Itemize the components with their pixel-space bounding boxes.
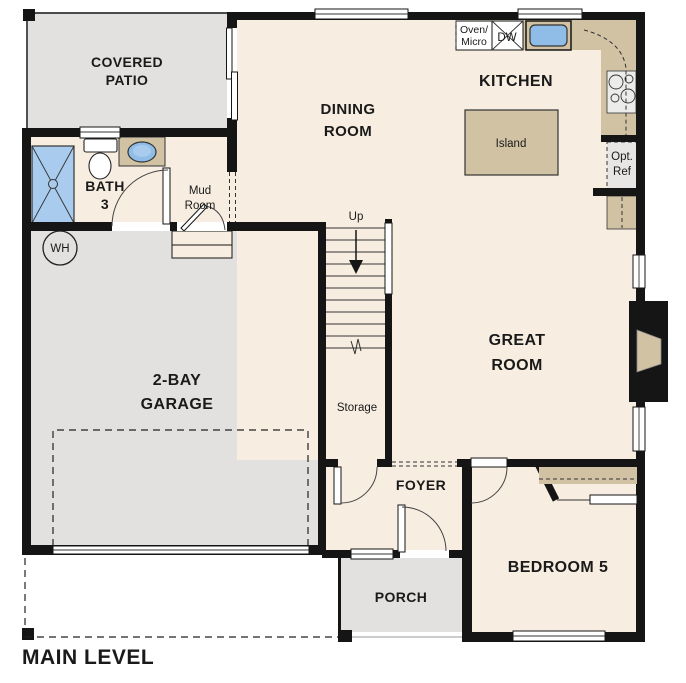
kitchen-label: KITCHEN	[479, 73, 553, 90]
great-room-label: ROOM	[491, 357, 542, 374]
plan-title: MAIN LEVEL	[22, 646, 154, 669]
door-leaf	[334, 467, 341, 504]
porch-label: PORCH	[375, 589, 428, 605]
step	[172, 245, 232, 258]
sliding-door-panel	[232, 72, 238, 120]
dining-room-label: ROOM	[324, 123, 372, 140]
island-label: Island	[496, 138, 527, 150]
covered-patio-label: COVERED	[91, 54, 163, 70]
closet-door	[590, 495, 637, 504]
porch-edge	[338, 556, 341, 632]
sliding-door-panel	[227, 28, 233, 79]
oven-micro-label: Micro	[461, 36, 487, 48]
storage-label: Storage	[337, 402, 377, 414]
wall-segment	[22, 222, 326, 231]
floor-plan: COVERED PATIO DINING ROOM KITCHEN Island…	[0, 0, 686, 683]
stair-half-wall	[385, 223, 392, 294]
porch-post	[338, 630, 352, 642]
wall-segment	[318, 459, 338, 467]
toilet-tank	[84, 139, 117, 152]
great-room-label: GREAT	[489, 332, 546, 349]
toilet-bowl	[89, 153, 111, 179]
wall-segment	[593, 188, 645, 196]
opt-ref-label: Ref	[613, 166, 632, 178]
step	[172, 231, 232, 245]
front-door-leaf	[398, 505, 405, 552]
mud-room-label: Room	[185, 200, 216, 212]
patio-post	[23, 9, 35, 21]
window	[80, 127, 120, 138]
wall-segment	[377, 459, 392, 467]
dining-room-label: DINING	[321, 101, 376, 118]
door-opening	[112, 222, 170, 231]
bath-3-label: BATH	[85, 178, 124, 194]
bath-3-label: 3	[101, 196, 109, 212]
wall-segment	[385, 294, 392, 460]
driveway-post	[22, 628, 34, 640]
bath-sink-basin	[133, 145, 151, 157]
wall-segment	[227, 118, 237, 172]
mud-room-label: Mud	[189, 185, 211, 197]
water-heater-label: WH	[50, 243, 69, 255]
closet-shelf	[539, 467, 637, 484]
door-opening	[400, 550, 449, 558]
fireplace	[629, 301, 668, 402]
covered-patio-area	[28, 13, 227, 128]
foyer-label: FOYER	[396, 477, 446, 493]
wall-segment	[601, 135, 645, 142]
shower-drain	[49, 180, 58, 189]
oven-micro-label: Oven/	[460, 24, 488, 36]
wall-segment	[227, 12, 237, 28]
wall-segment	[22, 128, 31, 555]
covered-patio-label: PATIO	[106, 72, 149, 88]
door-leaf	[163, 168, 170, 224]
kitchen-sink	[530, 25, 567, 46]
garage-label: GARAGE	[141, 396, 214, 413]
wall-segment	[462, 467, 472, 642]
bedroom-5-label: BEDROOM 5	[508, 559, 609, 576]
main-floor-area	[237, 19, 636, 460]
foyer-floor-area	[326, 459, 462, 551]
door-leaf	[471, 458, 507, 467]
wall-segment	[22, 128, 237, 137]
opt-ref-label: Opt.	[611, 151, 633, 163]
wall-segment	[318, 223, 326, 553]
stairs-up-label: Up	[349, 211, 364, 223]
garage-label: 2-BAY	[153, 372, 202, 389]
dishwasher-label: DW	[497, 32, 516, 44]
